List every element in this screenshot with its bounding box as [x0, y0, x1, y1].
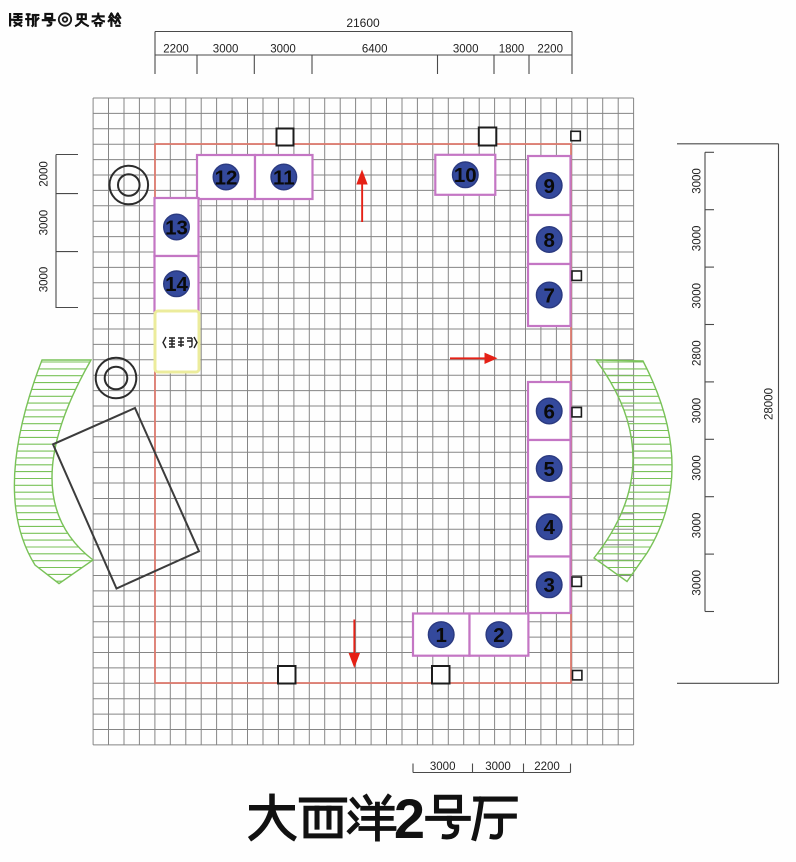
svg-text:2: 2: [394, 787, 425, 850]
svg-text:6400: 6400: [362, 44, 388, 56]
svg-text:28000: 28000: [764, 388, 776, 420]
svg-text:3000: 3000: [39, 267, 51, 293]
svg-text:12: 12: [215, 166, 238, 189]
svg-text:3000: 3000: [270, 44, 296, 56]
svg-text:8: 8: [543, 229, 554, 252]
svg-text:11: 11: [273, 166, 295, 189]
svg-text:14: 14: [165, 273, 188, 296]
svg-text:5: 5: [543, 458, 554, 481]
svg-text:6: 6: [543, 400, 554, 423]
svg-text:2: 2: [493, 624, 504, 647]
svg-text:9: 9: [543, 175, 554, 198]
svg-text:3000: 3000: [485, 761, 511, 773]
svg-text:3000: 3000: [430, 761, 456, 773]
svg-text:3000: 3000: [692, 455, 704, 481]
svg-text:21600: 21600: [346, 16, 380, 30]
svg-text:3000: 3000: [692, 398, 704, 424]
svg-text:2200: 2200: [537, 44, 563, 56]
svg-text:1800: 1800: [499, 44, 525, 56]
svg-text:3000: 3000: [692, 570, 704, 596]
svg-text:1: 1: [435, 624, 446, 647]
svg-text:3000: 3000: [39, 210, 51, 236]
svg-text:7: 7: [543, 284, 554, 307]
svg-text:2800: 2800: [692, 340, 704, 366]
svg-text:3000: 3000: [213, 44, 239, 56]
svg-text:2200: 2200: [163, 44, 189, 56]
svg-text:10: 10: [454, 164, 477, 187]
svg-text:3000: 3000: [453, 44, 479, 56]
svg-text:3000: 3000: [692, 283, 704, 309]
svg-text:13: 13: [165, 216, 188, 239]
svg-text:4: 4: [543, 516, 555, 539]
svg-text:3000: 3000: [692, 226, 704, 252]
svg-text:3000: 3000: [692, 513, 704, 539]
svg-text:2200: 2200: [534, 761, 560, 773]
svg-text:3000: 3000: [692, 168, 704, 194]
svg-text:2000: 2000: [39, 161, 51, 187]
svg-text:3: 3: [543, 574, 554, 597]
